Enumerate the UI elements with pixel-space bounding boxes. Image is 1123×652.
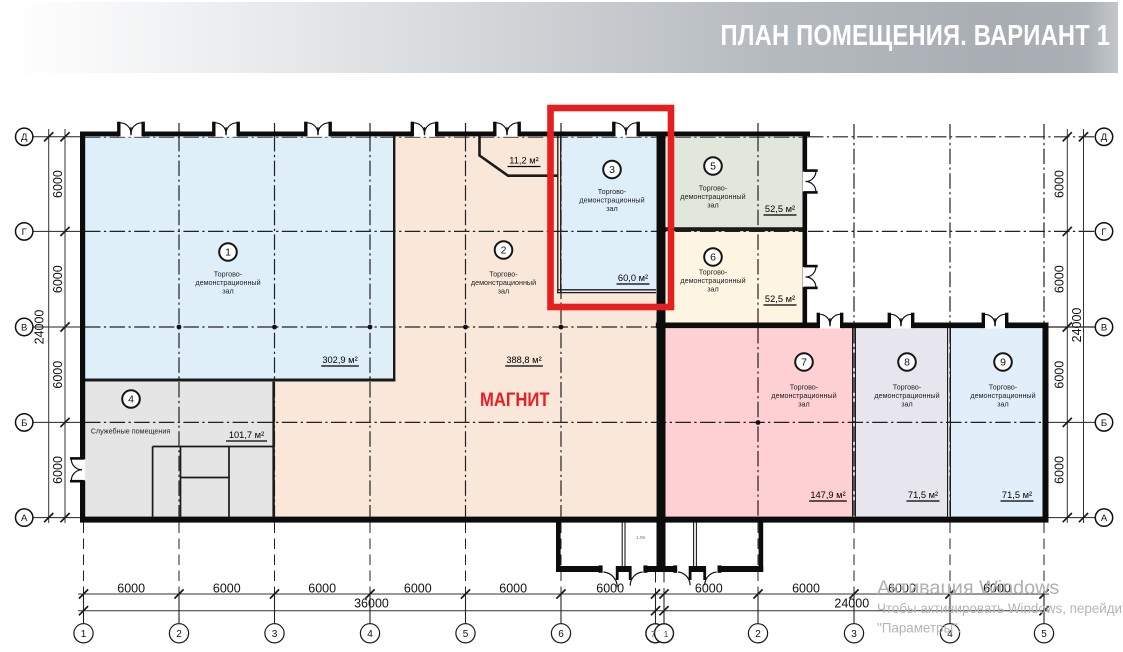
svg-text:Чтобы активировать Windows, пе: Чтобы активировать Windows, перейдите bbox=[877, 601, 1123, 616]
svg-text:6000: 6000 bbox=[499, 582, 527, 596]
svg-text:24000: 24000 bbox=[33, 310, 47, 345]
svg-text:Д: Д bbox=[21, 132, 28, 143]
svg-text:36000: 36000 bbox=[354, 596, 389, 610]
svg-text:зал: зал bbox=[707, 284, 719, 293]
svg-text:1: 1 bbox=[225, 247, 231, 259]
svg-text:24000: 24000 bbox=[834, 596, 869, 610]
svg-text:зал: зал bbox=[798, 399, 810, 408]
svg-text:зал: зал bbox=[498, 286, 510, 295]
svg-text:МАГНИТ: МАГНИТ bbox=[480, 389, 550, 411]
svg-text:3: 3 bbox=[272, 629, 278, 640]
svg-text:2: 2 bbox=[755, 629, 761, 640]
svg-text:6000: 6000 bbox=[596, 582, 624, 596]
svg-text:24000: 24000 bbox=[1070, 308, 1084, 343]
svg-text:5: 5 bbox=[463, 629, 469, 640]
svg-text:3: 3 bbox=[851, 629, 857, 640]
svg-text:Б: Б bbox=[1101, 418, 1107, 429]
svg-text:6000: 6000 bbox=[117, 582, 145, 596]
svg-text:зал: зал bbox=[997, 399, 1009, 408]
svg-text:302,9 м²: 302,9 м² bbox=[322, 355, 357, 365]
svg-text:"Параметры".: "Параметры". bbox=[877, 621, 962, 636]
svg-text:6000: 6000 bbox=[51, 361, 65, 389]
svg-text:147,9 м²: 147,9 м² bbox=[810, 490, 845, 500]
svg-text:1: 1 bbox=[664, 629, 669, 639]
svg-text:11,2 м²: 11,2 м² bbox=[509, 156, 538, 166]
svg-text:4: 4 bbox=[367, 629, 373, 640]
svg-text:5: 5 bbox=[710, 161, 716, 173]
svg-text:Г: Г bbox=[1101, 227, 1106, 238]
svg-text:В: В bbox=[1101, 322, 1107, 333]
svg-text:1.09: 1.09 bbox=[636, 535, 645, 540]
svg-text:3: 3 bbox=[609, 164, 615, 176]
svg-text:6000: 6000 bbox=[51, 265, 65, 293]
svg-text:8: 8 bbox=[904, 357, 910, 369]
svg-text:6000: 6000 bbox=[51, 170, 65, 198]
svg-text:зал: зал bbox=[901, 399, 913, 408]
svg-text:зал: зал bbox=[707, 200, 719, 209]
svg-text:5: 5 bbox=[1041, 629, 1047, 640]
svg-text:6000: 6000 bbox=[792, 582, 820, 596]
svg-text:Д: Д bbox=[1101, 132, 1108, 143]
svg-text:А: А bbox=[1101, 513, 1108, 524]
svg-text:9: 9 bbox=[1000, 357, 1006, 369]
svg-text:101,7 м²: 101,7 м² bbox=[229, 430, 264, 440]
svg-text:71,5 м²: 71,5 м² bbox=[908, 490, 938, 500]
svg-text:Б: Б bbox=[21, 418, 27, 429]
svg-text:6000: 6000 bbox=[404, 582, 432, 596]
svg-text:В: В bbox=[21, 322, 27, 333]
svg-text:Служебные помещения: Служебные помещения bbox=[91, 427, 171, 436]
svg-text:Активация Windows: Активация Windows bbox=[877, 577, 1059, 599]
svg-text:6000: 6000 bbox=[1053, 170, 1067, 198]
svg-text:6000: 6000 bbox=[308, 582, 336, 596]
svg-text:7: 7 bbox=[801, 357, 807, 369]
svg-text:60,0 м²: 60,0 м² bbox=[618, 273, 648, 283]
svg-text:6000: 6000 bbox=[695, 582, 723, 596]
svg-text:4: 4 bbox=[128, 394, 134, 406]
svg-text:зал: зал bbox=[222, 286, 234, 295]
svg-text:6000: 6000 bbox=[51, 456, 65, 484]
svg-text:7: 7 bbox=[651, 629, 656, 639]
svg-text:Г: Г bbox=[22, 227, 27, 238]
svg-text:2: 2 bbox=[501, 245, 507, 257]
svg-text:71,5 м²: 71,5 м² bbox=[1002, 490, 1032, 500]
svg-text:А: А bbox=[21, 513, 28, 524]
svg-text:388,8 м²: 388,8 м² bbox=[506, 355, 541, 365]
svg-text:зал: зал bbox=[606, 204, 618, 213]
svg-text:6000: 6000 bbox=[1053, 456, 1067, 484]
svg-text:52,5 м²: 52,5 м² bbox=[765, 294, 795, 304]
svg-text:6000: 6000 bbox=[1053, 361, 1067, 389]
svg-text:6000: 6000 bbox=[213, 582, 241, 596]
svg-text:2: 2 bbox=[176, 629, 182, 640]
svg-text:6: 6 bbox=[558, 629, 564, 640]
svg-text:6: 6 bbox=[710, 252, 716, 264]
svg-text:52,5 м²: 52,5 м² bbox=[765, 204, 795, 214]
svg-text:1: 1 bbox=[81, 629, 87, 640]
svg-text:6000: 6000 bbox=[1053, 265, 1067, 293]
